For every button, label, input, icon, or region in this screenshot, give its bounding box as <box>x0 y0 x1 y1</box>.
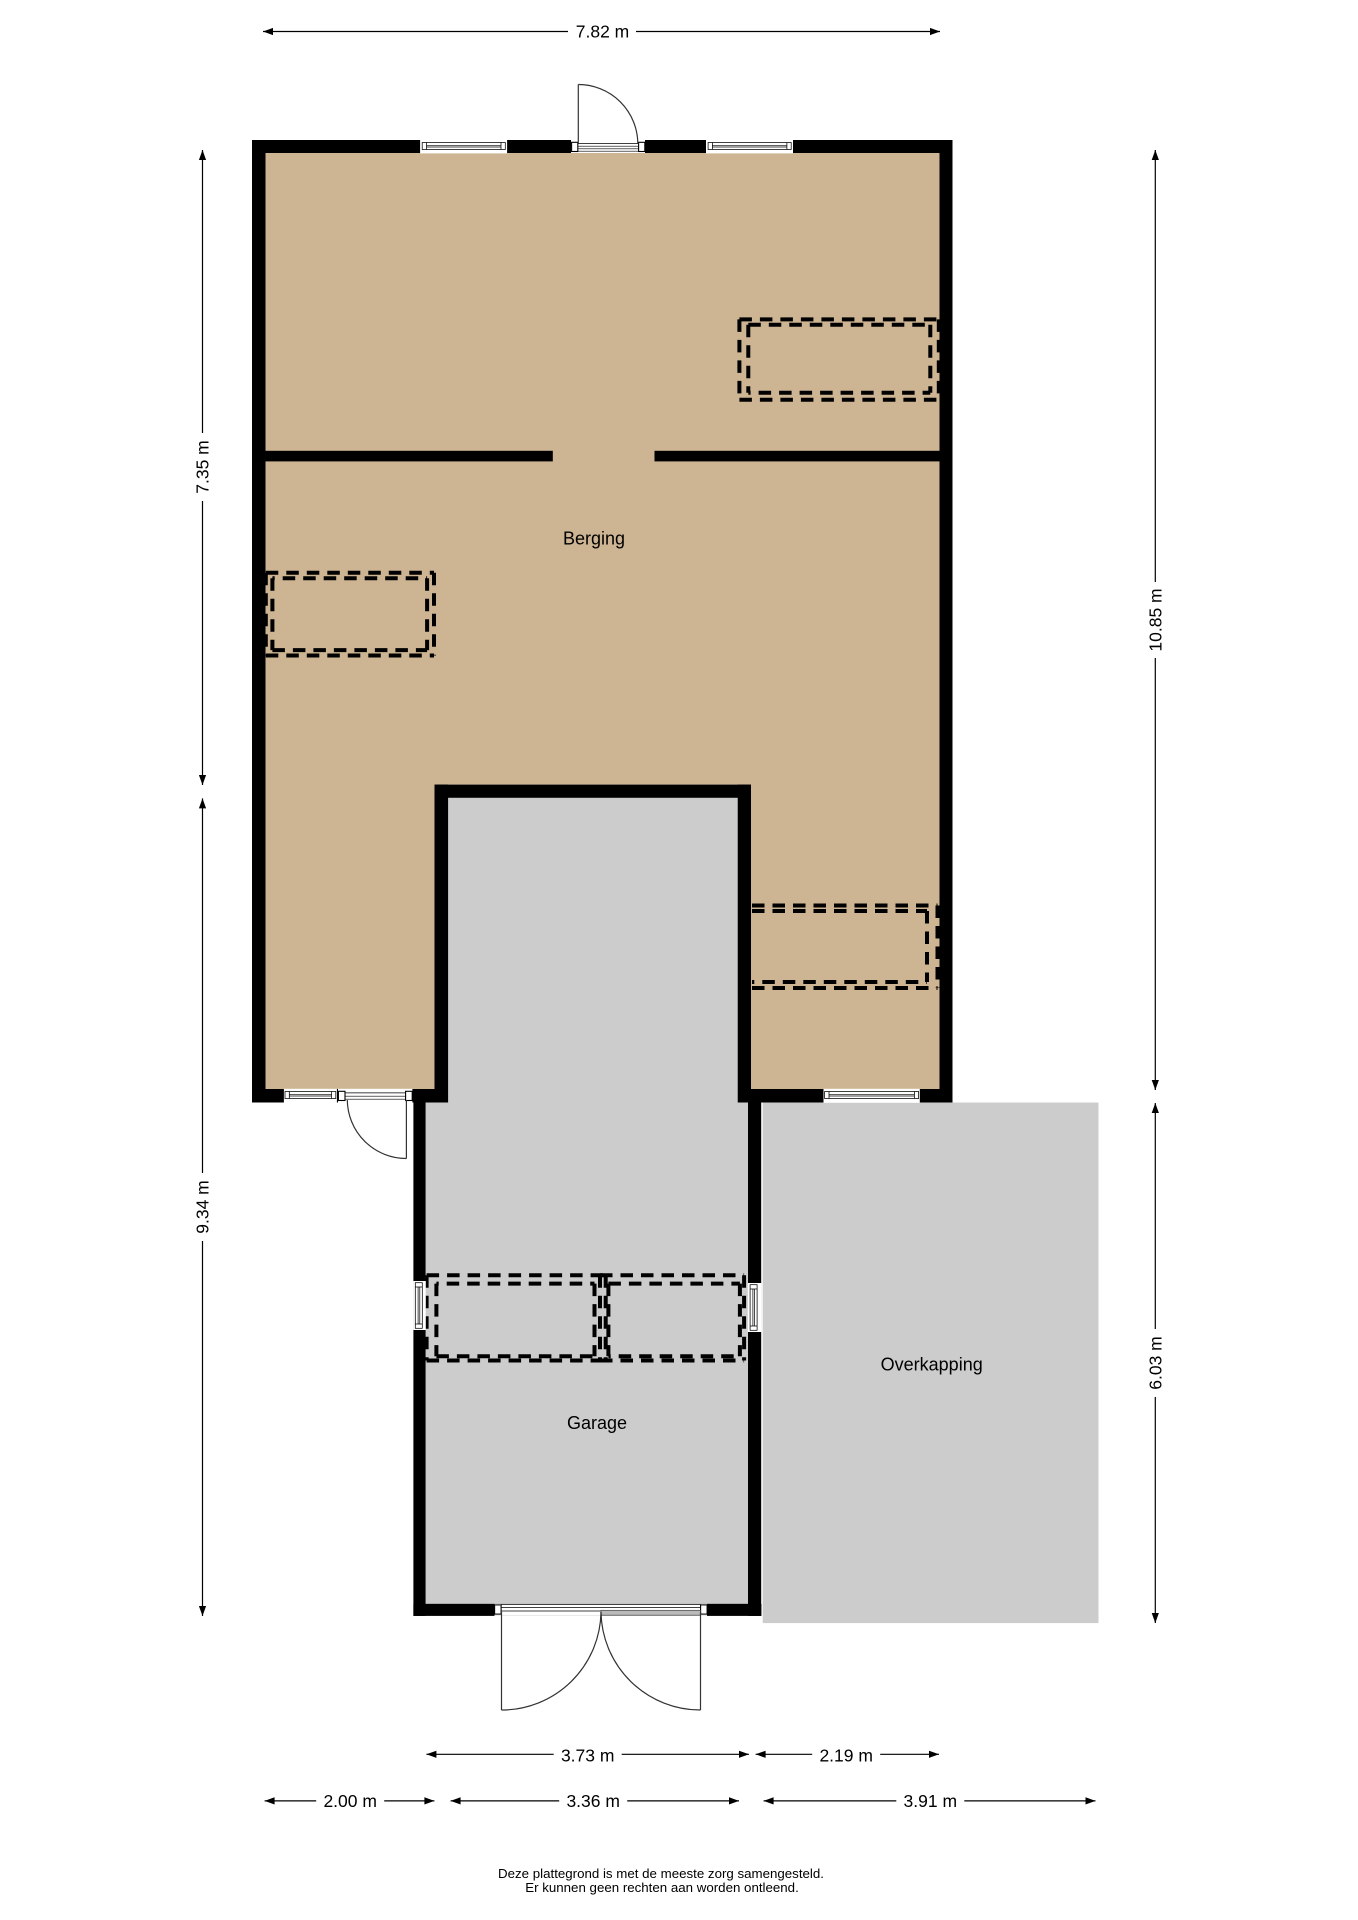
svg-text:2.19 m: 2.19 m <box>819 1745 873 1765</box>
svg-text:Deze plattegrond is met de mee: Deze plattegrond is met de meeste zorg s… <box>498 1866 824 1881</box>
svg-text:10.85 m: 10.85 m <box>1145 588 1165 651</box>
svg-text:3.91 m: 3.91 m <box>904 1791 958 1811</box>
svg-text:6.03 m: 6.03 m <box>1145 1336 1165 1390</box>
svg-text:3.73 m: 3.73 m <box>561 1745 615 1765</box>
svg-text:Berging: Berging <box>563 529 625 549</box>
svg-text:2.00 m: 2.00 m <box>323 1791 377 1811</box>
svg-text:9.34 m: 9.34 m <box>193 1180 213 1234</box>
svg-text:Er kunnen geen rechten aan wor: Er kunnen geen rechten aan worden ontlee… <box>525 1880 799 1895</box>
svg-text:Garage: Garage <box>567 1413 627 1433</box>
svg-text:Overkapping: Overkapping <box>881 1355 983 1375</box>
svg-text:7.35 m: 7.35 m <box>193 440 213 494</box>
svg-text:7.82 m: 7.82 m <box>576 22 630 42</box>
svg-text:3.36 m: 3.36 m <box>566 1791 620 1811</box>
